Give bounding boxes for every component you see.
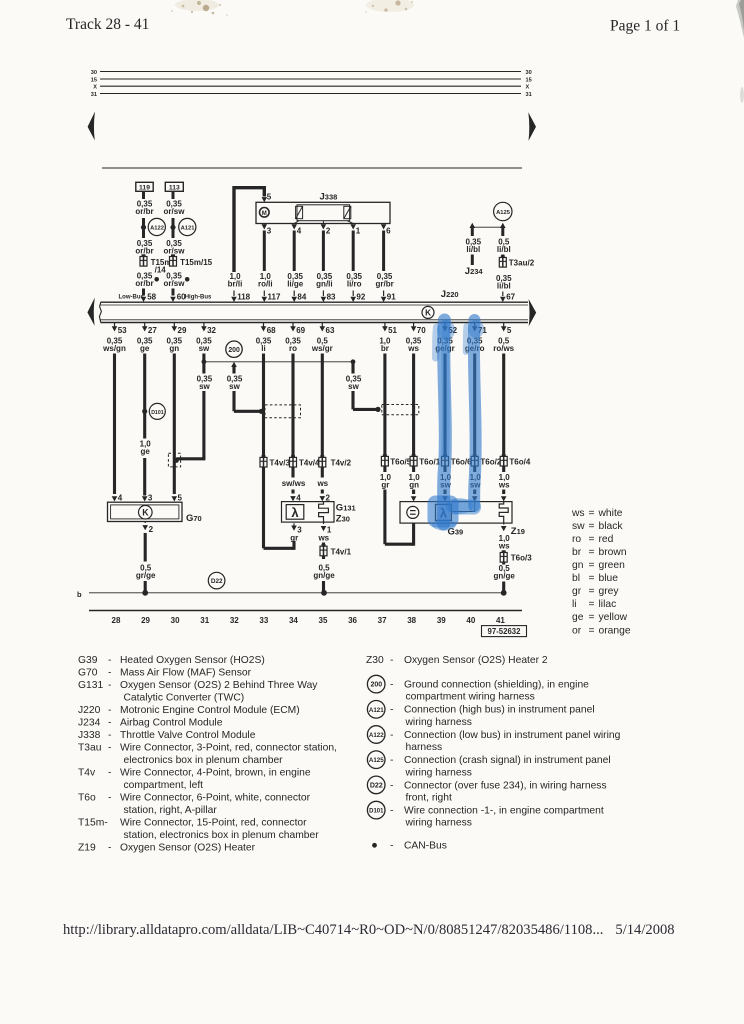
svg-text:=: = (589, 573, 595, 584)
svg-text:T6o: T6o (78, 793, 96, 804)
svg-text:=: = (589, 599, 595, 610)
svg-text:15: 15 (526, 77, 532, 83)
svg-text:gn/ge: gn/ge (494, 572, 516, 581)
svg-text:=: = (589, 534, 595, 545)
svg-text:sw/ws: sw/ws (282, 479, 306, 488)
svg-text:Mass Air Flow (MAF) Sensor: Mass Air Flow (MAF) Sensor (120, 668, 252, 679)
svg-text:37: 37 (378, 616, 387, 625)
svg-text:Connection (low bus) in instru: Connection (low bus) in instrument panel… (404, 730, 621, 741)
svg-text:T15m/15: T15m/15 (180, 258, 213, 267)
svg-text:4: 4 (118, 494, 123, 503)
svg-text:Wire Connector, 15-Point, red,: Wire Connector, 15-Point, red, connector (120, 818, 307, 829)
svg-text:CAN-Bus: CAN-Bus (404, 840, 447, 851)
svg-text:200: 200 (228, 347, 240, 354)
svg-text:27: 27 (148, 326, 157, 335)
svg-text:84: 84 (297, 293, 306, 302)
svg-text:sw: sw (199, 344, 210, 353)
svg-text:X: X (526, 85, 530, 91)
svg-text:Motronic Engine Control Module: Motronic Engine Control Module (ECM) (120, 705, 300, 716)
svg-text:ro/li: ro/li (258, 280, 273, 289)
svg-text:T6o/5: T6o/5 (390, 458, 411, 467)
svg-text:-: - (108, 655, 111, 666)
svg-text:33: 33 (259, 616, 268, 625)
svg-text:29: 29 (178, 326, 187, 335)
svg-text:λ: λ (291, 505, 299, 520)
svg-text:br: br (381, 344, 389, 353)
svg-text:li: li (572, 599, 577, 610)
svg-text:69: 69 (296, 326, 305, 335)
svg-text:-: - (390, 780, 393, 791)
svg-text:A121: A121 (369, 707, 384, 714)
svg-text:J338: J338 (78, 730, 101, 741)
svg-text:D22: D22 (211, 578, 223, 585)
svg-text:sw: sw (572, 521, 585, 532)
svg-text:Connection (high bus) in instr: Connection (high bus) in instrument pane… (404, 705, 595, 716)
svg-text:97-52632: 97-52632 (488, 627, 522, 636)
svg-text:electronics box in plenum cham: electronics box in plenum chamber (124, 755, 284, 766)
svg-text:red: red (599, 534, 614, 545)
svg-text:=: = (589, 625, 595, 636)
svg-text:sw: sw (348, 382, 359, 391)
svg-text:green: green (599, 560, 626, 571)
svg-text:white: white (598, 508, 623, 519)
svg-text:b: b (77, 590, 82, 599)
svg-text:br/li: br/li (228, 280, 243, 289)
svg-text:=: = (589, 560, 595, 571)
svg-text:5: 5 (178, 494, 183, 503)
svg-text:-: - (108, 743, 111, 754)
svg-text:J234: J234 (465, 266, 484, 277)
svg-text:Catalytic Converter (TWC): Catalytic Converter (TWC) (124, 693, 245, 704)
svg-text:A125: A125 (496, 210, 511, 216)
svg-text:-: - (108, 730, 111, 741)
svg-text:=: = (589, 612, 595, 623)
svg-text:D101: D101 (369, 809, 384, 815)
svg-text:58: 58 (147, 293, 156, 302)
svg-text:ws/gn: ws/gn (102, 344, 126, 353)
svg-text:Z30: Z30 (336, 513, 350, 524)
svg-text:grey: grey (599, 586, 620, 597)
svg-text:-: - (390, 806, 393, 817)
svg-text:=: = (589, 547, 595, 558)
svg-text:Wire Connector, 6-Point, white: Wire Connector, 6-Point, white, connecto… (120, 793, 311, 804)
svg-text:J234: J234 (78, 718, 101, 729)
svg-text:li/ge: li/ge (287, 280, 304, 289)
svg-text:28: 28 (112, 616, 121, 625)
svg-text:ws: ws (571, 508, 585, 519)
svg-text:200: 200 (370, 682, 382, 689)
svg-text:A121: A121 (181, 225, 196, 231)
svg-text:ge: ge (140, 344, 150, 353)
svg-text:ws: ws (498, 542, 510, 551)
svg-text:G70: G70 (186, 513, 202, 524)
svg-text:35: 35 (319, 616, 328, 625)
svg-text:67: 67 (506, 293, 515, 302)
svg-text:A125: A125 (369, 757, 384, 764)
svg-text:J338: J338 (320, 191, 338, 202)
svg-text:Wire Connector, 4-Point, brown: Wire Connector, 4-Point, brown, in engin… (120, 768, 311, 779)
svg-text:harness: harness (406, 742, 443, 753)
svg-text:4: 4 (296, 493, 301, 502)
svg-text:li/bl: li/bl (497, 245, 511, 254)
svg-text:Wire Connector, 3-Point, red,: Wire Connector, 3-Point, red, connector … (120, 743, 337, 754)
svg-text:-: - (390, 680, 393, 691)
svg-text:63: 63 (326, 326, 335, 335)
svg-text:Z30: Z30 (366, 655, 384, 666)
svg-text:15: 15 (91, 77, 97, 83)
svg-text:T4v/3: T4v/3 (270, 459, 291, 468)
svg-text:91: 91 (387, 293, 396, 302)
svg-text:station, right, A-pillar: station, right, A-pillar (124, 805, 218, 816)
svg-text:orange: orange (599, 625, 631, 636)
svg-text:wiring harness: wiring harness (405, 717, 472, 728)
svg-text:gn: gn (572, 560, 584, 571)
svg-text:-: - (108, 768, 111, 779)
svg-text:gr: gr (290, 533, 298, 542)
svg-text:ge: ge (141, 447, 151, 456)
svg-text:3: 3 (148, 494, 153, 503)
svg-text:gr: gr (572, 586, 582, 597)
svg-text:High-Bus: High-Bus (185, 294, 212, 300)
svg-text:K: K (425, 308, 431, 317)
svg-text:yellow: yellow (599, 612, 628, 623)
svg-text:G70: G70 (78, 668, 98, 679)
svg-text:K: K (142, 508, 149, 518)
svg-text:34: 34 (289, 616, 298, 625)
svg-text:38: 38 (407, 616, 416, 625)
svg-text:front, right: front, right (406, 793, 452, 804)
svg-text:blue: blue (599, 573, 619, 584)
svg-text:D22: D22 (370, 782, 383, 789)
svg-text:ge: ge (572, 612, 584, 623)
svg-text:A122: A122 (369, 732, 384, 739)
svg-text:Connector (over fuse 234), in: Connector (over fuse 234), in wiring har… (404, 780, 607, 791)
svg-text:Oxygen Sensor (O2S) Heater: Oxygen Sensor (O2S) Heater (120, 843, 256, 854)
svg-text:5: 5 (267, 193, 272, 202)
svg-text:bl: bl (572, 573, 580, 584)
svg-text:gn/li: gn/li (316, 280, 332, 289)
svg-text:30: 30 (526, 70, 532, 76)
svg-text:M: M (262, 211, 267, 217)
svg-text:-: - (390, 840, 393, 851)
svg-text:T15m-: T15m- (78, 818, 108, 829)
svg-text:ws: ws (316, 479, 328, 488)
svg-text:T4v/1: T4v/1 (331, 547, 352, 556)
svg-text:117: 117 (268, 293, 281, 302)
svg-text:-: - (108, 793, 111, 804)
svg-text:30: 30 (91, 70, 97, 76)
svg-text:li/bl: li/bl (497, 282, 511, 291)
svg-text:T4v: T4v (78, 768, 96, 779)
svg-text:gn: gn (169, 344, 179, 353)
svg-text:-: - (390, 705, 393, 716)
svg-text:-: - (108, 668, 111, 679)
svg-text:compartment, left: compartment, left (124, 780, 204, 791)
svg-text:wiring harness: wiring harness (405, 818, 472, 829)
svg-text:T3au: T3au (78, 743, 102, 754)
svg-text:119: 119 (139, 185, 150, 192)
svg-text:li/bl: li/bl (466, 245, 480, 254)
svg-text:or/sw: or/sw (164, 207, 186, 216)
svg-text:41: 41 (496, 616, 505, 625)
svg-text:J220: J220 (78, 705, 101, 716)
svg-text:Connection (crash signal) in i: Connection (crash signal) in instrument … (404, 755, 611, 766)
svg-text:70: 70 (417, 326, 426, 335)
svg-text:113: 113 (169, 185, 180, 192)
svg-text:32: 32 (230, 616, 239, 625)
svg-text:4: 4 (297, 226, 302, 235)
svg-text:-: - (390, 755, 393, 766)
svg-text:Track 28 - 41: Track 28 - 41 (66, 16, 149, 33)
svg-text:Oxygen Sensor (O2S) Heater 2: Oxygen Sensor (O2S) Heater 2 (404, 655, 548, 666)
svg-text:gr/ge: gr/ge (136, 571, 156, 580)
svg-text:gn: gn (409, 480, 419, 489)
svg-text:-: - (390, 730, 393, 741)
svg-text:Heated Oxygen Sensor (HO2S): Heated Oxygen Sensor (HO2S) (120, 655, 265, 666)
svg-text:or/br: or/br (135, 207, 153, 216)
svg-text:68: 68 (267, 326, 276, 335)
svg-text:2: 2 (326, 226, 331, 235)
svg-text:T6o/6: T6o/6 (451, 458, 472, 467)
svg-text:T4v/4: T4v/4 (299, 459, 320, 468)
svg-text:118: 118 (237, 293, 250, 302)
svg-text:40: 40 (466, 616, 475, 625)
svg-text:92: 92 (356, 293, 365, 302)
svg-text:51: 51 (388, 326, 397, 335)
svg-text:T6o/4: T6o/4 (509, 458, 530, 467)
svg-text:or/br: or/br (135, 279, 153, 288)
svg-text:2: 2 (149, 525, 154, 534)
svg-text:compartment wiring harness: compartment wiring harness (406, 692, 535, 703)
svg-text:li/ro: li/ro (347, 280, 362, 289)
svg-text:83: 83 (327, 293, 336, 302)
svg-text:J220: J220 (441, 289, 459, 300)
svg-text:Oxygen Sensor (O2S) 2 Behind T: Oxygen Sensor (O2S) 2 Behind Three Way (120, 680, 318, 691)
svg-text:32: 32 (207, 326, 216, 335)
svg-text:sw: sw (199, 382, 210, 391)
svg-text:T6o/1: T6o/1 (419, 458, 440, 467)
svg-text:-: - (108, 705, 111, 716)
svg-text:T6o/2: T6o/2 (480, 458, 501, 467)
svg-text:or/br: or/br (135, 247, 153, 256)
svg-text:=: = (589, 586, 595, 597)
svg-text:li: li (261, 344, 265, 353)
svg-text:gr/br: gr/br (375, 280, 393, 289)
svg-text:br: br (572, 547, 582, 558)
svg-text:5: 5 (507, 326, 512, 335)
svg-text:gr: gr (381, 480, 389, 489)
svg-text:Z19: Z19 (511, 526, 525, 537)
svg-text:6: 6 (386, 226, 391, 235)
svg-text:ws: ws (498, 480, 510, 489)
svg-text:-: - (390, 655, 393, 666)
svg-text:or: or (572, 625, 582, 636)
svg-text:brown: brown (599, 547, 627, 558)
svg-text:/14: /14 (155, 265, 167, 274)
svg-text:Z19: Z19 (78, 843, 96, 854)
svg-text:ro/ws: ro/ws (493, 344, 514, 353)
svg-text:Low-Bus: Low-Bus (119, 294, 145, 300)
svg-text:31: 31 (526, 92, 532, 98)
svg-text:Ground connection (shielding),: Ground connection (shielding), in engine (404, 680, 589, 691)
svg-text:=: = (589, 521, 595, 532)
svg-text:ws/gr: ws/gr (311, 344, 333, 353)
svg-text:G131: G131 (78, 680, 103, 691)
svg-text:29: 29 (141, 616, 150, 625)
svg-text:or/sw: or/sw (164, 247, 186, 256)
svg-text:wiring harness: wiring harness (405, 767, 472, 778)
svg-text:39: 39 (437, 616, 446, 625)
svg-text:or/sw: or/sw (164, 279, 186, 288)
svg-text:D101: D101 (151, 410, 164, 416)
svg-text:-: - (108, 843, 111, 854)
svg-text:station, electronics box in pl: station, electronics box in plenum chamb… (124, 830, 320, 841)
svg-text:X: X (93, 85, 97, 91)
svg-text:ws: ws (407, 344, 419, 353)
svg-text:2: 2 (326, 493, 331, 502)
svg-text:36: 36 (348, 616, 357, 625)
svg-text:Throttle Valve Control Module: Throttle Valve Control Module (120, 730, 256, 741)
svg-text:ro: ro (572, 534, 581, 545)
svg-text:1: 1 (356, 226, 361, 235)
svg-text:Wire connection -1-, in engine: Wire connection -1-, in engine compartme… (404, 806, 604, 817)
svg-text:lilac: lilac (599, 599, 617, 610)
svg-text:T3au/2: T3au/2 (509, 259, 535, 268)
svg-text:-: - (108, 718, 111, 729)
svg-text:gn/ge: gn/ge (313, 571, 335, 580)
svg-text:ro: ro (289, 344, 297, 353)
svg-text:Airbag Control Module: Airbag Control Module (120, 718, 223, 729)
svg-text:sw: sw (229, 382, 240, 391)
svg-text:A122: A122 (150, 225, 164, 231)
svg-text:=: = (589, 508, 595, 519)
svg-text:53: 53 (118, 326, 127, 335)
svg-text:-: - (108, 680, 111, 691)
svg-text:ws: ws (317, 533, 329, 542)
svg-text:T4v/2: T4v/2 (331, 459, 352, 468)
svg-text:31: 31 (200, 616, 209, 625)
svg-text:T6o/3: T6o/3 (511, 554, 532, 563)
svg-text:Page 1 of 1: Page 1 of 1 (610, 18, 680, 35)
svg-text:30: 30 (171, 616, 180, 625)
svg-text:G131: G131 (336, 502, 356, 513)
svg-text:black: black (599, 521, 624, 532)
svg-text:G39: G39 (78, 655, 98, 666)
svg-text:3: 3 (267, 226, 272, 235)
svg-text:31: 31 (91, 92, 97, 98)
